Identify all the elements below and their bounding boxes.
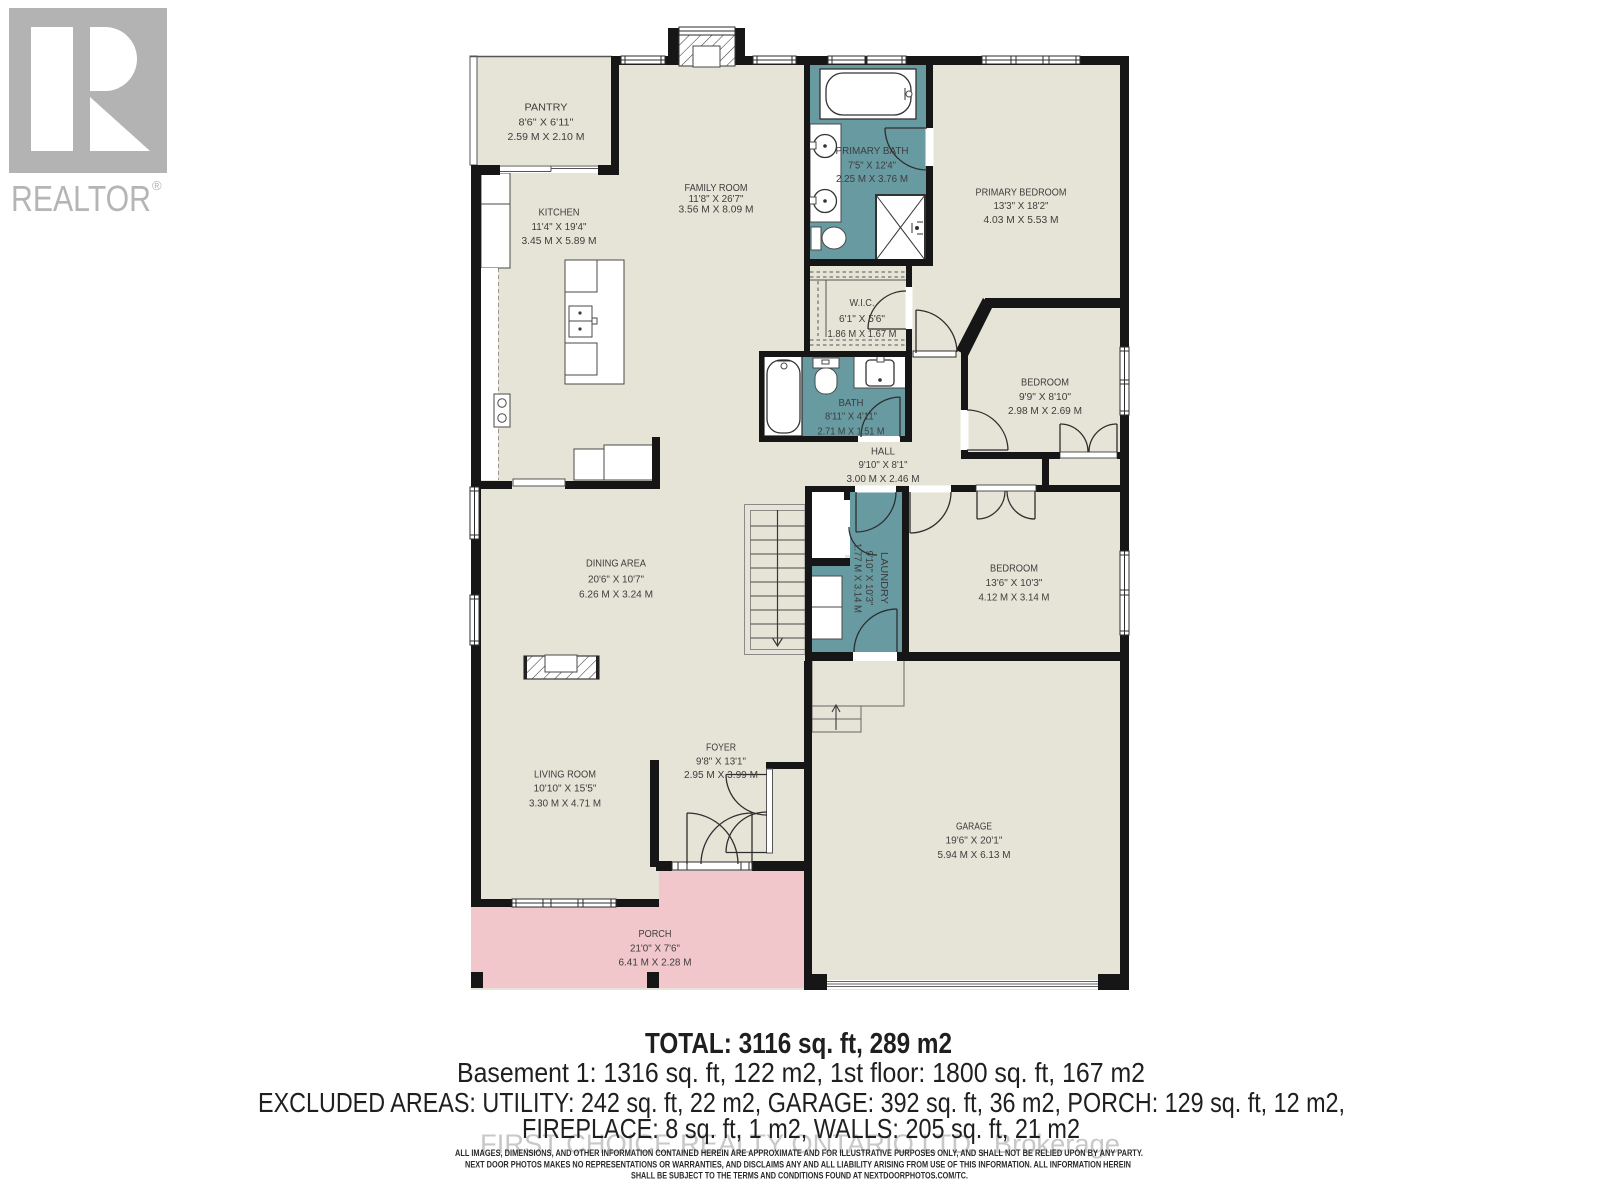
svg-text:10'10" X 15'5": 10'10" X 15'5": [534, 784, 597, 795]
svg-text:6.41 M X 2.28 M: 6.41 M X 2.28 M: [619, 958, 692, 969]
svg-text:1.86 M X 1.67 M: 1.86 M X 1.67 M: [828, 329, 897, 340]
svg-text:19'6" X 20'1": 19'6" X 20'1": [946, 836, 1003, 847]
svg-text:2.59 M X 2.10 M: 2.59 M X 2.10 M: [508, 132, 585, 143]
svg-text:FAMILY ROOM: FAMILY ROOM: [685, 183, 748, 194]
svg-text:8'6" X 6'11": 8'6" X 6'11": [519, 118, 574, 129]
svg-text:Basement 1: 1316 sq. ft, 122 m: Basement 1: 1316 sq. ft, 122 m2, 1st flo…: [457, 1057, 1145, 1088]
svg-text:6.26 M X 3.24 M: 6.26 M X 3.24 M: [579, 590, 653, 601]
svg-text:8'11" X 4'11": 8'11" X 4'11": [825, 412, 877, 423]
svg-text:LIVING ROOM: LIVING ROOM: [534, 770, 596, 781]
svg-text:3.56 M X 8.09 M: 3.56 M X 8.09 M: [679, 205, 754, 216]
svg-text:7'5" X 12'4": 7'5" X 12'4": [848, 161, 896, 172]
svg-text:PANTRY: PANTRY: [525, 103, 568, 114]
svg-text:TOTAL: 3116 sq. ft, 289 m2: TOTAL: 3116 sq. ft, 289 m2: [645, 1028, 952, 1060]
svg-text:13'6" X 10'3": 13'6" X 10'3": [986, 578, 1043, 589]
svg-text:9'9" X 8'10": 9'9" X 8'10": [1019, 392, 1071, 403]
svg-text:®: ®: [152, 178, 162, 193]
svg-text:KITCHEN: KITCHEN: [539, 208, 580, 219]
svg-text:BATH: BATH: [839, 398, 864, 409]
svg-text:3.00 M X 2.46 M: 3.00 M X 2.46 M: [847, 474, 920, 485]
svg-text:6'1" X 5'6": 6'1" X 5'6": [839, 314, 885, 325]
svg-text:2.98 M X 2.69 M: 2.98 M X 2.69 M: [1008, 406, 1082, 417]
svg-text:21'0" X 7'6": 21'0" X 7'6": [630, 944, 680, 955]
svg-text:5.94 M X 6.13 M: 5.94 M X 6.13 M: [938, 850, 1011, 861]
svg-text:4.03 M X 5.53 M: 4.03 M X 5.53 M: [984, 215, 1059, 226]
svg-text:PORCH: PORCH: [639, 929, 672, 940]
svg-text:20'6" X 10'7": 20'6" X 10'7": [588, 575, 644, 586]
svg-text:FOYER: FOYER: [706, 743, 736, 754]
svg-text:3.30 M X 4.71 M: 3.30 M X 4.71 M: [529, 799, 601, 810]
svg-text:LAUNDRY: LAUNDRY: [878, 552, 889, 604]
svg-text:ALL IMAGES, DIMENSIONS, AND OT: ALL IMAGES, DIMENSIONS, AND OTHER INFORM…: [455, 1148, 1143, 1159]
svg-text:9'10" X 8'1": 9'10" X 8'1": [859, 460, 908, 471]
svg-text:REALTOR: REALTOR: [11, 178, 151, 219]
svg-text:GARAGE: GARAGE: [956, 822, 992, 833]
svg-text:11'4" X 19'4": 11'4" X 19'4": [532, 222, 587, 233]
svg-text:4.12 M X 3.14 M: 4.12 M X 3.14 M: [979, 593, 1050, 604]
svg-text:11'8" X 26'7": 11'8" X 26'7": [689, 194, 744, 205]
svg-text:FIREPLACE: 8 sq. ft, 1 m2, WAL: FIREPLACE: 8 sq. ft, 1 m2, WALLS: 205 sq…: [522, 1113, 1080, 1144]
svg-text:NEXT DOOR PHOTOS MAKES NO REPR: NEXT DOOR PHOTOS MAKES NO REPRESENTATION…: [465, 1160, 1131, 1171]
svg-text:2.71 M X 1.51 M: 2.71 M X 1.51 M: [818, 427, 885, 438]
svg-text:PRIMARY BEDROOM: PRIMARY BEDROOM: [976, 188, 1067, 199]
svg-text:2.25 M X 3.76 M: 2.25 M X 3.76 M: [836, 174, 908, 185]
svg-text:PRIMARY BATH: PRIMARY BATH: [836, 146, 909, 157]
svg-text:BEDROOM: BEDROOM: [1021, 378, 1069, 389]
svg-text:W.I.C.: W.I.C.: [850, 298, 875, 309]
svg-text:HALL: HALL: [871, 447, 895, 458]
svg-text:13'3" X 18'2": 13'3" X 18'2": [994, 201, 1049, 212]
svg-text:1.77 M X 3.14 M: 1.77 M X 3.14 M: [852, 543, 863, 613]
svg-text:9'10" X 10'3": 9'10" X 10'3": [863, 551, 874, 606]
svg-text:DINING AREA: DINING AREA: [586, 559, 646, 570]
svg-text:2.95 M X 3.99 M: 2.95 M X 3.99 M: [684, 770, 758, 781]
svg-text:SHALL BE SUBJECT TO THE TERMS: SHALL BE SUBJECT TO THE TERMS AND CONDIT…: [631, 1171, 968, 1182]
svg-text:3.45 M X 5.89 M: 3.45 M X 5.89 M: [522, 236, 597, 247]
svg-text:9'8" X 13'1": 9'8" X 13'1": [696, 757, 746, 768]
svg-text:BEDROOM: BEDROOM: [990, 564, 1038, 575]
